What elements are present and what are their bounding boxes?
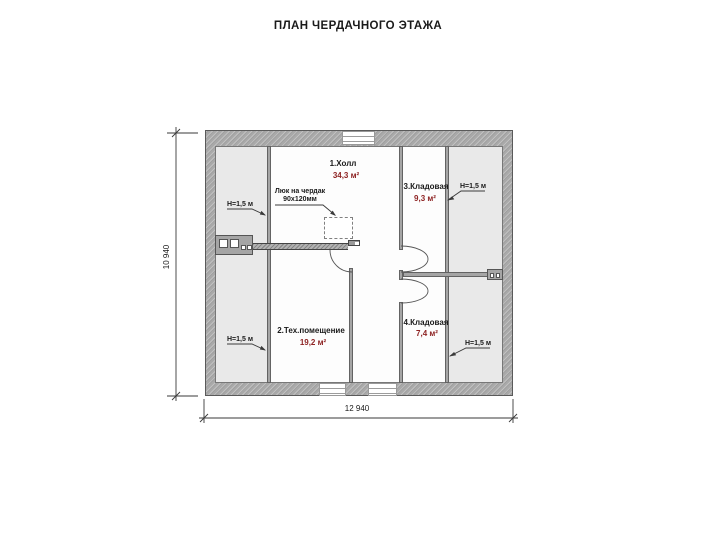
leader-arrow	[449, 352, 456, 357]
door-arc-techroom	[330, 250, 352, 272]
leader-height-top-left	[227, 209, 265, 215]
floor-plan-page: { "title": "ПЛАН ЧЕРДАЧНОГО ЭТАЖА", "roo…	[0, 0, 716, 537]
door-arc-storage4	[401, 279, 428, 303]
leader-attic-hatch	[275, 205, 335, 215]
leader-arrow	[260, 211, 266, 216]
leader-height-bottom-right	[450, 348, 490, 356]
door-arc-storage3	[401, 246, 428, 272]
plan-linework	[0, 0, 716, 537]
leader-arrow	[260, 346, 266, 351]
leader-height-bottom-left	[227, 344, 265, 350]
